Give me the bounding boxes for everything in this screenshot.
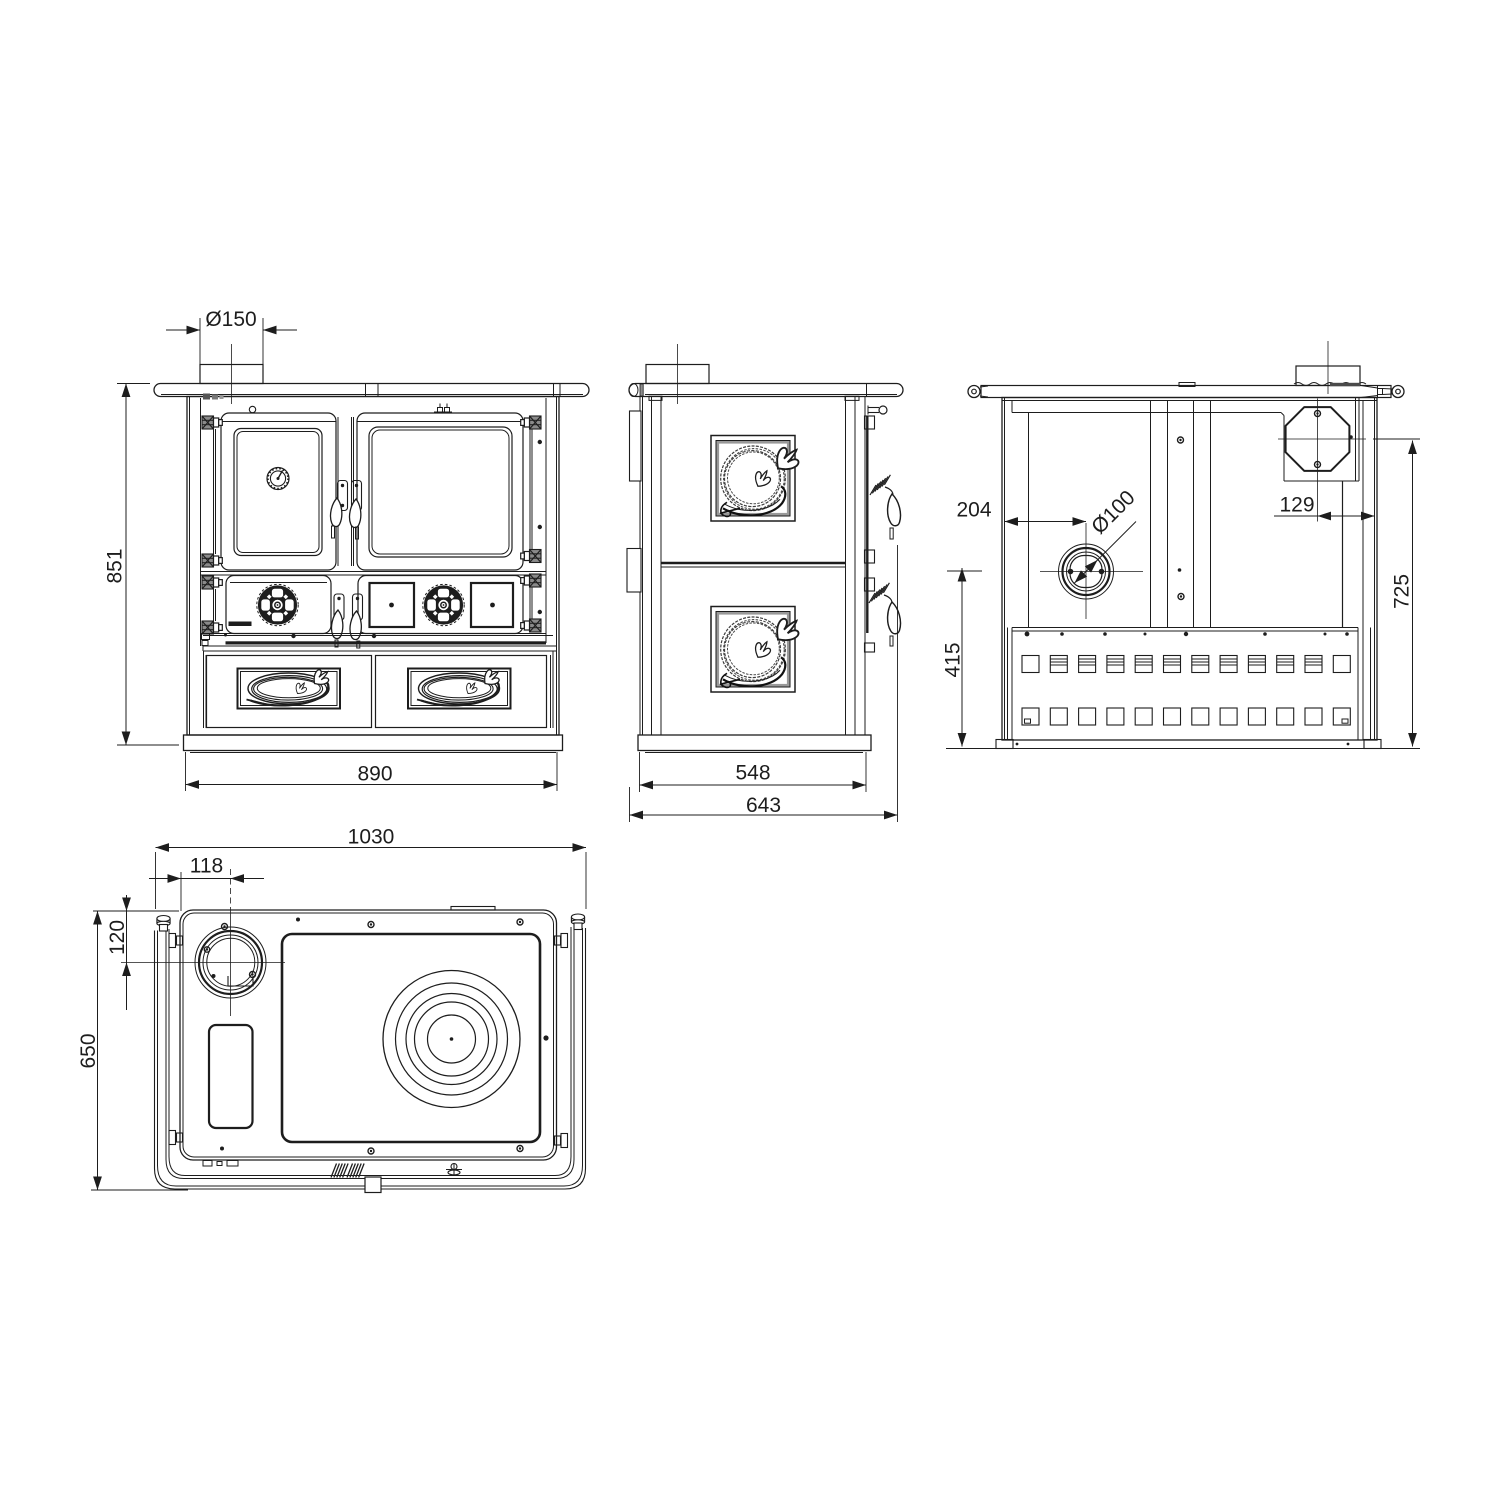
svg-text:129: 129 xyxy=(1279,494,1314,517)
svg-text:725: 725 xyxy=(1391,574,1414,609)
svg-text:1030: 1030 xyxy=(348,826,395,849)
svg-text:548: 548 xyxy=(735,762,770,785)
svg-text:643: 643 xyxy=(746,794,781,817)
svg-text:415: 415 xyxy=(942,642,965,677)
svg-text:204: 204 xyxy=(956,499,991,522)
svg-text:650: 650 xyxy=(77,1033,100,1068)
svg-text:890: 890 xyxy=(357,763,392,786)
svg-text:851: 851 xyxy=(104,548,127,583)
svg-text:118: 118 xyxy=(190,855,223,878)
svg-text:120: 120 xyxy=(106,920,129,955)
svg-text:Ø150: Ø150 xyxy=(205,308,256,331)
